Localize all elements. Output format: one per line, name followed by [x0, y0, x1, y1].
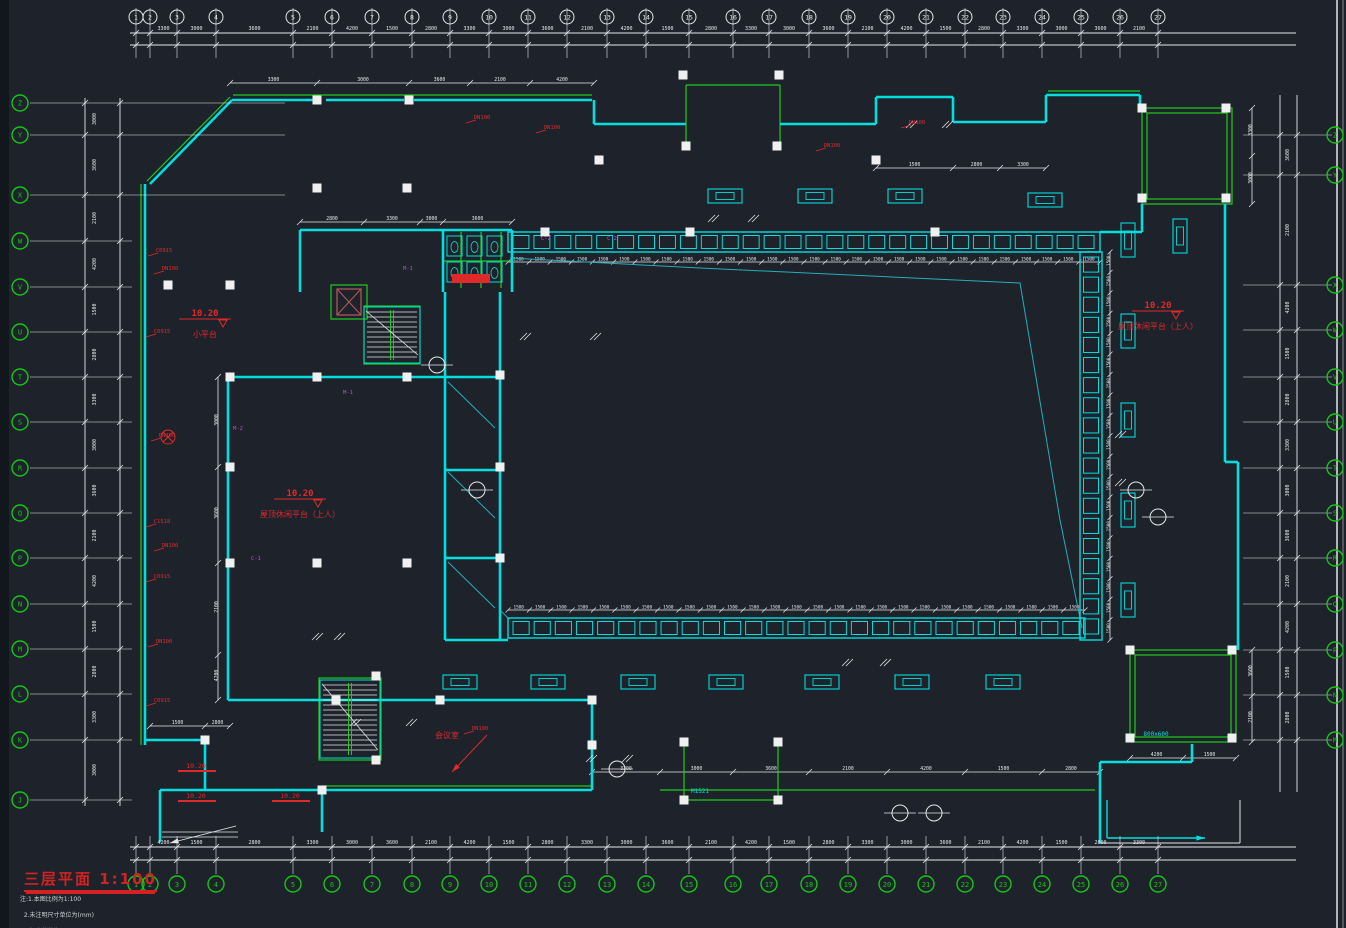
window-symbol — [1121, 403, 1135, 437]
svg-text:16: 16 — [729, 881, 737, 889]
svg-text:3000: 3000 — [357, 77, 369, 83]
svg-text:1500: 1500 — [684, 605, 695, 611]
svg-text:1500: 1500 — [936, 257, 947, 263]
svg-text:1500: 1500 — [1106, 276, 1112, 287]
svg-text:1500: 1500 — [873, 257, 884, 263]
column — [403, 373, 412, 382]
svg-text:4200: 4200 — [92, 575, 98, 587]
red-wall-tag: DN100 — [464, 726, 488, 734]
svg-text:X: X — [18, 192, 23, 200]
axis-bubble-bottom: 15 — [681, 876, 697, 892]
svg-text:DN100: DN100 — [162, 266, 179, 272]
svg-text:2800: 2800 — [971, 162, 983, 168]
column — [226, 281, 235, 290]
axis-bubble-left: V — [12, 279, 28, 295]
svg-text:12: 12 — [563, 14, 571, 22]
svg-text:2800: 2800 — [92, 348, 98, 360]
svg-text:1500: 1500 — [190, 840, 202, 846]
svg-text:T: T — [18, 374, 23, 382]
column — [405, 96, 414, 105]
svg-text:3300: 3300 — [306, 840, 318, 846]
red-fill-counter — [452, 274, 490, 283]
svg-text:3000: 3000 — [190, 26, 202, 32]
column — [403, 559, 412, 568]
svg-text:S: S — [18, 419, 22, 427]
svg-text:3300: 3300 — [1133, 840, 1145, 846]
column — [1126, 734, 1135, 743]
svg-text:1500: 1500 — [962, 605, 973, 611]
svg-text:1500: 1500 — [727, 605, 738, 611]
svg-text:1500: 1500 — [788, 257, 799, 263]
red-wall-tag: DN100 — [466, 115, 490, 123]
svg-text:小平台: 小平台 — [193, 329, 217, 339]
window-symbol — [443, 675, 477, 689]
svg-text:W: W — [18, 238, 23, 246]
svg-text:3600: 3600 — [765, 766, 777, 772]
svg-text:9: 9 — [448, 14, 452, 22]
svg-text:3300: 3300 — [1016, 26, 1028, 32]
svg-text:DN100: DN100 — [472, 726, 489, 732]
svg-text:3300: 3300 — [1017, 162, 1029, 168]
svg-text:27: 27 — [1154, 881, 1162, 889]
svg-text:2100: 2100 — [425, 840, 437, 846]
svg-text:3000: 3000 — [346, 840, 358, 846]
column — [679, 71, 688, 80]
svg-text:3600: 3600 — [386, 840, 398, 846]
svg-text:3600: 3600 — [248, 26, 260, 32]
axis-bubble-bottom: 18 — [801, 876, 817, 892]
svg-text:2800: 2800 — [212, 720, 224, 726]
svg-text:13: 13 — [603, 14, 611, 22]
svg-text:屋顶休闲平台（上人）: 屋顶休闲平台（上人） — [260, 509, 340, 519]
svg-text:6: 6 — [330, 14, 334, 22]
svg-text:1500: 1500 — [1026, 605, 1037, 611]
annotations: 10.20小平台10.20屋顶休闲平台（上人）10.20屋顶休闲平台（上人）10… — [146, 115, 1198, 801]
axis-bubble-left: J — [12, 792, 28, 808]
svg-text:26: 26 — [1116, 14, 1124, 22]
svg-text:4200: 4200 — [214, 670, 220, 682]
svg-text:M1521: M1521 — [691, 788, 709, 795]
axis-bubble-bottom: 3 — [169, 876, 185, 892]
svg-text:2100: 2100 — [92, 212, 98, 224]
svg-text:2800: 2800 — [1285, 711, 1291, 723]
column — [1228, 734, 1237, 743]
svg-text:1500: 1500 — [998, 766, 1010, 772]
svg-text:1500: 1500 — [599, 605, 610, 611]
column — [775, 71, 784, 80]
svg-text:2800: 2800 — [978, 26, 990, 32]
svg-text:15: 15 — [685, 14, 693, 22]
svg-text:8: 8 — [410, 14, 414, 22]
svg-text:U: U — [18, 329, 22, 337]
svg-text:1500: 1500 — [1048, 605, 1059, 611]
svg-text:1500: 1500 — [1204, 752, 1216, 758]
toilet-fixture — [467, 236, 482, 256]
red-wall-tag: C0915 — [148, 248, 172, 256]
svg-text:P: P — [18, 555, 22, 563]
axis-bubble-left: R — [12, 460, 28, 476]
svg-text:20: 20 — [883, 881, 891, 889]
svg-text:2800: 2800 — [822, 840, 834, 846]
svg-text:1500: 1500 — [1106, 357, 1112, 368]
svg-text:6: 6 — [330, 881, 334, 889]
svg-text:1500: 1500 — [502, 840, 514, 846]
svg-text:12: 12 — [563, 881, 571, 889]
svg-text:4200: 4200 — [556, 77, 568, 83]
axis-bubble-left: K — [12, 732, 28, 748]
svg-text:L: L — [18, 691, 22, 699]
axis-bubble-bottom: 26 — [1112, 876, 1128, 892]
svg-text:21: 21 — [922, 881, 930, 889]
detail-callout — [884, 805, 916, 821]
svg-text:4200: 4200 — [900, 26, 912, 32]
svg-text:3000: 3000 — [214, 414, 220, 426]
column — [680, 738, 689, 747]
axis-bubble-bottom: 5 — [285, 876, 301, 892]
svg-text:1500: 1500 — [984, 605, 995, 611]
svg-text:1500: 1500 — [598, 257, 609, 263]
elevator-symbol — [337, 289, 361, 315]
svg-text:DN100: DN100 — [162, 543, 179, 549]
axis-bubble-bottom: 24 — [1034, 876, 1050, 892]
red-wall-tag: C0915 — [146, 698, 170, 706]
svg-text:1500: 1500 — [386, 26, 398, 32]
axis-bubble-bottom: 8 — [404, 876, 420, 892]
red-wall-tag: DN100 — [154, 543, 178, 551]
svg-text:2100: 2100 — [861, 26, 873, 32]
axis-bubble-left: Q — [12, 505, 28, 521]
svg-text:会议室: 会议室 — [435, 730, 459, 740]
red-wall-tag: DN100 — [816, 143, 840, 151]
svg-text:1500: 1500 — [1106, 623, 1112, 634]
axis-bubble-bottom: 14 — [638, 876, 654, 892]
axis-bubble-bottom: 12 — [559, 876, 575, 892]
svg-text:3600: 3600 — [434, 77, 446, 83]
svg-text:C0915: C0915 — [154, 329, 171, 335]
svg-text:1500: 1500 — [894, 257, 905, 263]
svg-text:11: 11 — [524, 881, 532, 889]
window-symbol — [888, 189, 922, 203]
svg-text:2800: 2800 — [1094, 840, 1106, 846]
svg-text:DN100: DN100 — [159, 433, 176, 439]
detail-callout — [421, 357, 453, 373]
red-wall-tag: DN100 — [148, 639, 172, 647]
svg-text:1500: 1500 — [556, 257, 567, 263]
detail-callout — [918, 805, 950, 821]
svg-text:10.20: 10.20 — [186, 792, 206, 800]
svg-text:U: U — [1333, 419, 1337, 427]
svg-text:1500: 1500 — [783, 840, 795, 846]
column — [496, 554, 505, 563]
column — [313, 96, 322, 105]
column — [686, 228, 695, 237]
svg-text:1500: 1500 — [92, 303, 98, 315]
svg-text:11: 11 — [524, 14, 532, 22]
svg-text:4200: 4200 — [1016, 840, 1028, 846]
svg-text:V: V — [18, 284, 23, 292]
svg-text:1500: 1500 — [939, 26, 951, 32]
svg-text:22: 22 — [961, 881, 969, 889]
window-symbol — [1121, 223, 1135, 257]
window-symbol — [986, 675, 1020, 689]
svg-text:2100: 2100 — [842, 766, 854, 772]
svg-text:屋顶休闲平台（上人）: 屋顶休闲平台（上人） — [1118, 321, 1198, 331]
elevation-label: 10.20屋顶休闲平台（上人） — [260, 489, 340, 519]
svg-text:1500: 1500 — [556, 605, 567, 611]
svg-text:Z: Z — [18, 100, 22, 108]
column — [496, 463, 505, 472]
svg-text:3600: 3600 — [661, 840, 673, 846]
svg-text:N: N — [1333, 692, 1337, 700]
staircase — [364, 307, 420, 363]
column — [332, 696, 341, 705]
svg-text:2100: 2100 — [306, 26, 318, 32]
column — [313, 559, 322, 568]
svg-text:3600: 3600 — [1285, 149, 1291, 161]
red-wall-tag: DN100 — [154, 266, 178, 274]
svg-text:2800: 2800 — [248, 840, 260, 846]
svg-text:3600: 3600 — [822, 26, 834, 32]
svg-text:3300: 3300 — [92, 711, 98, 723]
note-line-2: 2.未注明尺寸单位为(mm) — [24, 912, 94, 919]
svg-text:Q: Q — [1333, 601, 1337, 609]
svg-text:1500: 1500 — [915, 257, 926, 263]
column — [595, 156, 604, 165]
svg-text:1500: 1500 — [831, 257, 842, 263]
axis-bubble-bottom: 19 — [840, 876, 856, 892]
svg-text:13: 13 — [603, 881, 611, 889]
column — [226, 463, 235, 472]
svg-text:1500: 1500 — [749, 605, 760, 611]
svg-text:3000: 3000 — [92, 764, 98, 776]
svg-text:Q: Q — [18, 510, 22, 518]
axis-grid: 3300300036002100420015002800330030003600… — [12, 8, 1343, 892]
svg-text:4200: 4200 — [463, 840, 475, 846]
svg-text:4200: 4200 — [346, 26, 358, 32]
svg-text:2800: 2800 — [705, 26, 717, 32]
detail-callout — [461, 482, 493, 498]
red-wall-tag: C0915 — [146, 329, 170, 337]
green-detail-walls — [141, 85, 1236, 800]
svg-text:DN100: DN100 — [156, 639, 173, 645]
drawing-title: 三层平面 1:100 — [24, 868, 157, 892]
svg-text:16: 16 — [729, 14, 737, 22]
svg-text:DN100: DN100 — [474, 115, 491, 121]
svg-text:C0915: C0915 — [154, 698, 171, 704]
column — [931, 228, 940, 237]
svg-text:4200: 4200 — [92, 258, 98, 270]
svg-text:4200: 4200 — [1285, 301, 1291, 313]
svg-text:1500: 1500 — [1106, 602, 1112, 613]
svg-text:18: 18 — [805, 14, 813, 22]
svg-text:10.20: 10.20 — [191, 309, 218, 319]
axis-bubble-left: W — [12, 233, 28, 249]
svg-text:1500: 1500 — [513, 257, 524, 263]
svg-text:1: 1 — [134, 14, 138, 22]
red-wall-tag: C0915 — [146, 574, 170, 582]
svg-text:M: M — [1333, 737, 1337, 745]
cad-viewport[interactable]: 1500150015001500150015001500150015001500… — [0, 0, 1346, 928]
column — [226, 559, 235, 568]
column — [1138, 104, 1147, 113]
svg-text:3000: 3000 — [1285, 484, 1291, 496]
svg-text:1500: 1500 — [1106, 541, 1112, 552]
svg-text:1500: 1500 — [1000, 257, 1011, 263]
axis-bubble-left: X — [12, 187, 28, 203]
svg-text:10.20: 10.20 — [186, 762, 206, 770]
axis-bubble-left: P — [12, 550, 28, 566]
cyan-walls — [145, 95, 1238, 843]
svg-text:1500: 1500 — [1063, 257, 1074, 263]
svg-text:3000: 3000 — [502, 26, 514, 32]
column — [588, 741, 597, 750]
svg-text:27: 27 — [1154, 14, 1162, 22]
svg-text:1500: 1500 — [642, 605, 653, 611]
svg-text:17: 17 — [765, 14, 773, 22]
svg-text:K: K — [18, 737, 23, 745]
svg-text:R: R — [18, 465, 23, 473]
svg-text:3000: 3000 — [783, 26, 795, 32]
svg-text:C1518: C1518 — [154, 519, 171, 525]
svg-text:3600: 3600 — [1248, 665, 1254, 677]
window-symbol — [531, 675, 565, 689]
svg-text:24: 24 — [1038, 881, 1046, 889]
svg-text:3000: 3000 — [900, 840, 912, 846]
svg-text:3000: 3000 — [620, 840, 632, 846]
column — [318, 786, 327, 795]
svg-text:7: 7 — [370, 881, 374, 889]
column — [1228, 646, 1237, 655]
svg-text:1500: 1500 — [1106, 418, 1112, 429]
floor-plan-canvas[interactable]: 1500150015001500150015001500150015001500… — [0, 0, 1346, 928]
svg-text:15: 15 — [685, 881, 693, 889]
svg-text:1500: 1500 — [1106, 521, 1112, 532]
note-line-1: 注:1.本图比例为1:100 — [20, 896, 81, 903]
svg-text:N: N — [18, 601, 22, 609]
window-symbol — [709, 675, 743, 689]
svg-text:1500: 1500 — [852, 257, 863, 263]
svg-text:3: 3 — [175, 881, 179, 889]
svg-text:1500: 1500 — [791, 605, 802, 611]
svg-text:3300: 3300 — [1285, 439, 1291, 451]
svg-text:1500: 1500 — [813, 605, 824, 611]
svg-text:1500: 1500 — [809, 257, 820, 263]
red-wall-tag: DN100 — [151, 433, 175, 441]
axis-bubble-bottom: 16 — [725, 876, 741, 892]
svg-text:2100: 2100 — [581, 26, 593, 32]
svg-text:P: P — [1333, 647, 1337, 655]
svg-text:19: 19 — [844, 881, 852, 889]
svg-text:2100: 2100 — [705, 840, 717, 846]
svg-text:1500: 1500 — [683, 257, 694, 263]
svg-text:1500: 1500 — [855, 605, 866, 611]
axis-bubble-bottom: 10 — [481, 876, 497, 892]
svg-text:1500: 1500 — [1106, 296, 1112, 307]
svg-text:1500: 1500 — [1106, 439, 1112, 450]
svg-text:4200: 4200 — [920, 766, 932, 772]
svg-text:3300: 3300 — [745, 26, 757, 32]
svg-text:M-1: M-1 — [343, 390, 353, 396]
svg-text:3300: 3300 — [861, 840, 873, 846]
svg-text:DN100: DN100 — [544, 125, 561, 131]
svg-text:22: 22 — [961, 14, 969, 22]
svg-text:1500: 1500 — [877, 605, 888, 611]
svg-text:C-2: C-2 — [607, 236, 617, 242]
svg-text:10: 10 — [485, 14, 493, 22]
axis-bubble-left: U — [12, 324, 28, 340]
staircase — [320, 680, 380, 758]
svg-text:3300: 3300 — [463, 26, 475, 32]
column — [774, 796, 783, 805]
svg-text:4: 4 — [214, 14, 218, 22]
svg-text:23: 23 — [999, 881, 1007, 889]
axis-bubble-bottom: 20 — [879, 876, 895, 892]
axis-bubble-left: S — [12, 414, 28, 430]
svg-text:1500: 1500 — [172, 720, 184, 726]
svg-text:21: 21 — [922, 14, 930, 22]
column — [588, 696, 597, 705]
svg-text:2100: 2100 — [1285, 575, 1291, 587]
axis-bubble-bottom: 7 — [364, 876, 380, 892]
columns — [164, 71, 1237, 805]
svg-text:3000: 3000 — [92, 439, 98, 451]
svg-text:1500: 1500 — [514, 605, 525, 611]
svg-text:C0915: C0915 — [156, 248, 173, 254]
window-symbol — [1121, 314, 1135, 348]
svg-text:1500: 1500 — [941, 605, 952, 611]
axis-bubble-bottom: 22 — [957, 876, 973, 892]
svg-text:19: 19 — [844, 14, 852, 22]
svg-text:1500: 1500 — [1106, 561, 1112, 572]
column — [372, 756, 381, 765]
svg-text:10: 10 — [485, 881, 493, 889]
porch-level-label: 10.20 — [178, 762, 216, 771]
axis-bubble-bottom: 4 — [208, 876, 224, 892]
window-symbol — [621, 675, 655, 689]
svg-text:3600: 3600 — [1094, 26, 1106, 32]
column — [872, 156, 881, 165]
svg-text:10.20: 10.20 — [286, 489, 313, 499]
svg-text:1500: 1500 — [1106, 337, 1112, 348]
axis-bubble-bottom: 25 — [1073, 876, 1089, 892]
svg-text:1500: 1500 — [706, 605, 717, 611]
column — [1126, 646, 1135, 655]
svg-text:Z: Z — [1333, 132, 1337, 140]
svg-text:2100: 2100 — [494, 77, 506, 83]
svg-text:1500: 1500 — [1106, 459, 1112, 470]
svg-text:1500: 1500 — [898, 605, 909, 611]
svg-text:2800: 2800 — [1285, 393, 1291, 405]
svg-text:1500: 1500 — [92, 620, 98, 632]
svg-text:3600: 3600 — [92, 484, 98, 496]
svg-text:1500: 1500 — [1106, 398, 1112, 409]
column — [496, 371, 505, 380]
axis-bubble-bottom: 6 — [324, 876, 340, 892]
svg-text:3: 3 — [175, 14, 179, 22]
svg-text:1500: 1500 — [725, 257, 736, 263]
svg-text:800x600: 800x600 — [1143, 731, 1169, 738]
drawing-notes: 注:1.本图比例为1:100 2.未注明尺寸单位为(mm) 3.标高单位为(m) — [20, 896, 94, 928]
svg-text:2100: 2100 — [1285, 224, 1291, 236]
window-symbol — [895, 675, 929, 689]
axis-bubble-bottom: 11 — [520, 876, 536, 892]
svg-text:1500: 1500 — [979, 257, 990, 263]
svg-text:M: M — [18, 646, 22, 654]
svg-text:3300: 3300 — [268, 77, 280, 83]
svg-text:2800: 2800 — [541, 840, 553, 846]
svg-text:1500: 1500 — [1106, 378, 1112, 389]
toilet-fixture — [487, 236, 502, 256]
